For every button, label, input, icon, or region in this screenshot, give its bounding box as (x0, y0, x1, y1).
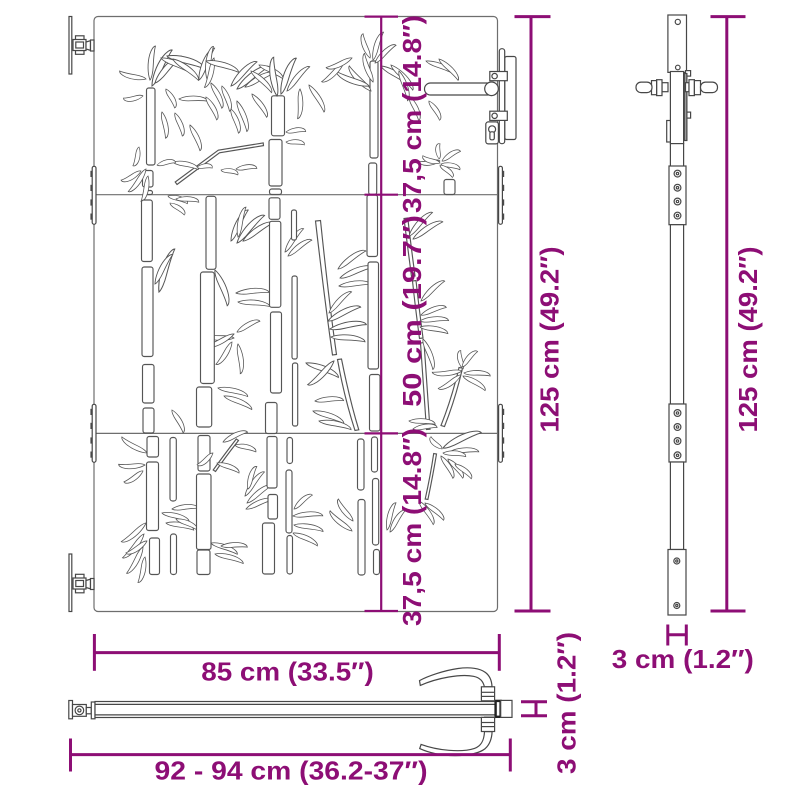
svg-text:125 cm (49.2″): 125 cm (49.2″) (535, 247, 565, 433)
svg-text:3 cm (1.2″): 3 cm (1.2″) (552, 632, 582, 774)
svg-text:37,5 cm (14.8″): 37,5 cm (14.8″) (397, 428, 427, 626)
svg-text:125 cm (49.2″): 125 cm (49.2″) (733, 247, 763, 433)
svg-text:37,5 cm (14.8″): 37,5 cm (14.8″) (397, 15, 427, 213)
svg-text:50 cm (19.7″): 50 cm (19.7″) (397, 215, 427, 407)
svg-text:85 cm (33.5″): 85 cm (33.5″) (201, 657, 374, 687)
svg-text:3 cm (1.2″): 3 cm (1.2″) (612, 644, 754, 674)
svg-text:92 - 94 cm (36.2-37″): 92 - 94 cm (36.2-37″) (155, 756, 428, 786)
